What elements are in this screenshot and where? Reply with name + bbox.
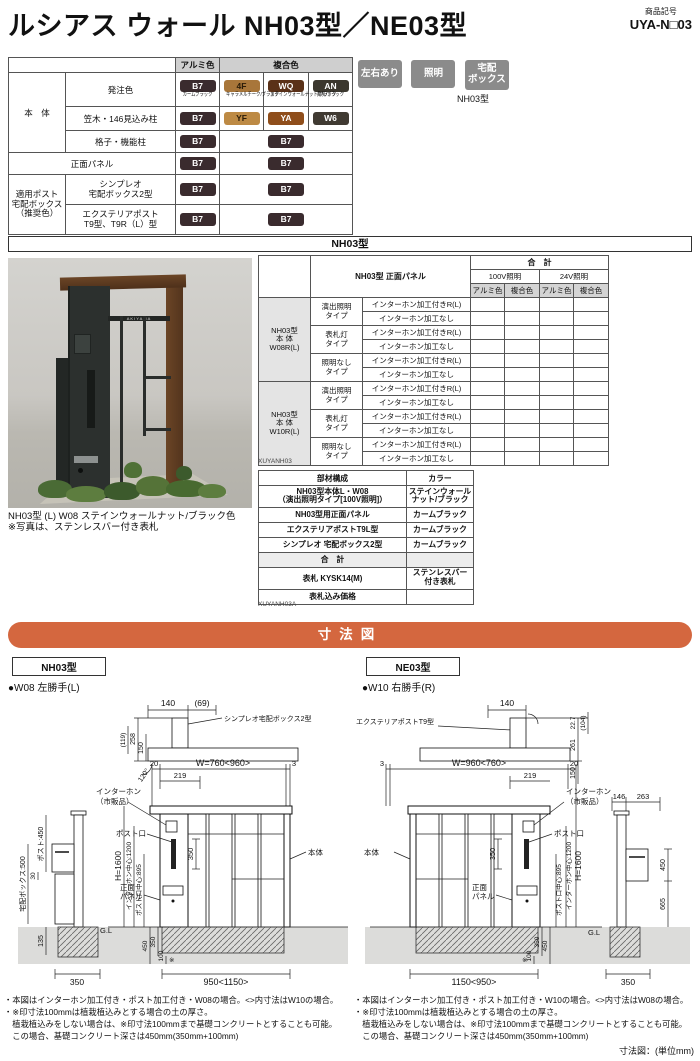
table-row: 照明なしタイプ インターホン加工付きR(L) xyxy=(259,354,609,368)
spec-group-w10: NH03型本 体W10R(L) xyxy=(259,382,311,466)
dim-side-350: 350 xyxy=(70,977,84,987)
label-exterior-post: エクステリアポスト T9型、T9R（L）型 xyxy=(66,205,176,235)
label-front-panel-1: 正面 xyxy=(472,883,487,892)
row-front-panel: 正面パネル B7 B7 xyxy=(9,153,353,175)
color-table-blank-cell xyxy=(9,58,176,73)
photo-cross-rail-1 xyxy=(143,376,171,379)
nh03-plan-view: 140 (69) シンプレオ宅配ボックス2型 258 150 (119) 120… xyxy=(120,698,311,784)
spec-type-hyosatsu: 表札灯タイプ xyxy=(311,326,363,354)
badge-lighting: 照明 xyxy=(411,60,455,88)
elev-left-post xyxy=(410,814,416,927)
product-code: 商品記号 UYA-N□03 xyxy=(630,6,692,32)
side-footing xyxy=(610,927,640,957)
dim-width: W=960<760> xyxy=(452,758,506,768)
color-chip-yf: YF xyxy=(224,112,260,125)
badge-model-note: NH03型 xyxy=(457,92,528,105)
dim-140: 140 xyxy=(500,698,514,708)
color-table-header: アルミ色 複合色 xyxy=(9,58,353,73)
chip-name-4f: キャラメルチーク/ブラック xyxy=(226,93,257,99)
color-chip-4f: 4F xyxy=(224,80,260,93)
dimension-section-title: 寸法図 xyxy=(8,622,692,648)
elev-nameplate xyxy=(517,886,537,895)
table-row: エクステリアポストT9L型カームブラック xyxy=(259,522,474,537)
ne03-variant-label: ●W10 右勝手(R) xyxy=(362,679,435,694)
elev-nameplate xyxy=(163,886,183,895)
photo-doorbell-button xyxy=(78,468,83,473)
color-table: アルミ色 複合色 本 体 発注色 B7カームブラック 4Fキャラメルチーク/ブラ… xyxy=(8,57,353,235)
dim-450: 450 xyxy=(542,940,549,951)
unit-note: 寸法図：(単位mm) xyxy=(619,1044,694,1057)
color-chip-b7: B7 xyxy=(268,183,304,196)
elev-top-beam xyxy=(150,806,292,814)
color-chip-b7: B7 xyxy=(180,112,216,125)
color-chip-an: AN xyxy=(313,80,349,93)
dim-h1600: H=1600 xyxy=(573,851,583,881)
dim-146: 146 xyxy=(613,792,626,801)
dim-119: (119) xyxy=(120,733,127,748)
parts-color-header: カラー xyxy=(407,471,474,486)
label-gl: G.L xyxy=(100,926,112,935)
label-front-panel-2: パネル xyxy=(472,892,495,901)
side-footing xyxy=(58,927,98,957)
label-front-panel: 正面パネル xyxy=(9,153,176,175)
color-chip-b7: B7 xyxy=(180,80,216,93)
table-row: 表札灯タイプ インターホン加工付きR(L) xyxy=(259,326,609,340)
product-code-label: 商品記号 xyxy=(630,6,692,17)
elev-footing xyxy=(162,927,284,953)
chip-name-an: 桑炭/ブラック xyxy=(315,93,346,99)
elev-post-slot xyxy=(171,839,176,869)
label-intercom: インターホン xyxy=(96,787,141,796)
nh03-variant-label: ●W08 左勝手(L) xyxy=(8,679,80,694)
ne03-model-label: NE03型 xyxy=(366,657,460,676)
product-photo: AKIYAMA xyxy=(8,258,252,508)
dim-69: (69) xyxy=(194,698,209,708)
chip-cell-4f: 4Fキャラメルチーク/ブラック xyxy=(220,73,264,107)
dim-width: W=760<960> xyxy=(196,758,250,768)
spec-24v-header: 24V照明 xyxy=(540,270,609,284)
dim-665: 665 xyxy=(660,898,667,910)
dim-slot-center: ポスト口中心:895 xyxy=(554,864,563,916)
table-row: NH03型本 体W10R(L) 演出照明タイプ インターホン加工付きR(L) xyxy=(259,382,609,396)
plan-box-label: シンプレオ宅配ボックス2型 xyxy=(224,714,311,723)
nh03-model-label: NH03型 xyxy=(12,657,106,676)
nh03-notes: ・本図はインターホン加工付き・ポスト加工付き・W08の場合。<>内寸法はW10の… xyxy=(4,994,350,1042)
parts-header: 部材構成 xyxy=(259,471,407,486)
spec-type-nolight: 照明なしタイプ xyxy=(311,354,363,382)
dim-takuhai-500: 宅配ボックス:500 xyxy=(18,856,27,912)
table-row: NH03型用正面パネルカームブラック xyxy=(259,507,474,522)
spec-100v-header: 100V照明 xyxy=(471,270,540,284)
product-code-value: UYA-N□03 xyxy=(630,17,692,32)
dim-258: 258 xyxy=(130,733,137,745)
dim-bottom-width: 1150<950> xyxy=(452,977,497,987)
label-order-color: 発注色 xyxy=(66,73,176,107)
spec-panel-header: NH03型 正面パネル xyxy=(311,256,471,298)
label-hontai: 本体 xyxy=(308,847,323,857)
chip-name-wq: ステインウォールナット/ブラック xyxy=(270,93,302,99)
dim-h1600: H=1600 xyxy=(113,851,123,881)
nh03-dimension-drawing: 140 (69) シンプレオ宅配ボックス2型 258 150 (119) 120… xyxy=(0,694,350,994)
photo-caption: NH03型 (L) W08 ステインウォールナット/ブラック色 ※写真は、ステン… xyxy=(8,512,236,534)
table-row: 表札 KYSK14(M) ステンレスバー付き表札 xyxy=(259,567,474,589)
dim-slot-350: 350 xyxy=(186,848,195,861)
dim-450: 450 xyxy=(142,940,149,951)
dim-350b: 350 xyxy=(534,936,541,947)
color-chip-b7: B7 xyxy=(268,157,304,170)
dim-261: 261 xyxy=(570,739,577,751)
table-row: 照明なしタイプ インターホン加工付きR(L) xyxy=(259,438,609,452)
color-chip-b7: B7 xyxy=(268,135,304,148)
dim-angle-120: 120° xyxy=(136,767,151,784)
label-kasagi: 笠木・146見込み柱 xyxy=(66,107,176,131)
dim-219: 219 xyxy=(524,771,537,780)
dim-intercom-center: インターホン中心:1200 xyxy=(564,841,573,910)
color-chip-w6: W6 xyxy=(313,112,349,125)
dim-140: 140 xyxy=(161,698,175,708)
parts-table: 部材構成 カラー NH03型本体L・W08（演出照明タイプ[100V照明]） ス… xyxy=(258,470,474,605)
color-chip-wq: WQ xyxy=(268,80,304,93)
spec-table-code: XUYANH03 xyxy=(258,458,292,465)
ne03-plan-view: エクステリアポストT9型 140 22.7 (104) 261 150 xyxy=(356,698,588,784)
label-body: 本 体 xyxy=(9,73,66,153)
chip-cell-b7: B7カームブラック xyxy=(176,73,220,107)
spec-total-header: 合 計 xyxy=(471,256,609,270)
col-aluminum: アルミ色 xyxy=(176,58,220,73)
side-cap xyxy=(71,811,86,815)
photo-post-slot xyxy=(87,370,95,428)
table-row: NH03型本 体W08R(L) 演出照明タイプ インターホン加工付きR(L) xyxy=(259,298,609,312)
photo-cross-rail-2 xyxy=(143,428,171,431)
color-chip-b7: B7 xyxy=(180,183,216,196)
photo-nameplate xyxy=(74,456,98,463)
spec-type-enshutsu: 演出照明タイプ xyxy=(311,298,363,326)
color-chip-b7: B7 xyxy=(268,213,304,226)
elev-post-slot xyxy=(524,839,529,869)
spec-blank-cell xyxy=(259,256,311,298)
dim-intercom-center: インターホン中心:1200 xyxy=(124,841,133,910)
model-band: NH03型 xyxy=(8,236,692,252)
spec-table: NH03型 正面パネル 合 計 100V照明 24V照明 アルミ色 複合色 アル… xyxy=(258,255,609,466)
col-composite: 複合色 xyxy=(220,58,353,73)
row-simpleo: 適用ポスト 宅配ボックス （推奨色） シンプレオ 宅配ボックス2型 B7 B7 xyxy=(9,175,353,205)
spec-group-w08: NH03型本 体W08R(L) xyxy=(259,298,311,382)
elev-intercom xyxy=(523,821,534,832)
label-post-slot: ポスト口 xyxy=(116,829,146,838)
dim-135: 135 xyxy=(38,935,45,947)
table-row: NH03型本体L・W08（演出照明タイプ[100V照明]） ステインウォールナッ… xyxy=(259,486,474,508)
badge-delivery-box: 宅配 ボックス xyxy=(465,60,509,90)
elev-top-beam xyxy=(408,806,550,814)
dim-150: 150 xyxy=(138,742,145,754)
dim-bottom-width: 950<1150> xyxy=(204,977,249,987)
label-intercom-2: （市販品） xyxy=(566,796,604,806)
ne03-notes: ・本図はインターホン加工付き・ポスト加工付き・W10の場合。<>内寸法はW08の… xyxy=(354,994,696,1042)
plan-post-box xyxy=(510,718,526,748)
photo-nameplate-rail: AKIYAMA xyxy=(108,316,170,321)
side-cap xyxy=(614,811,629,815)
side-delivery-box xyxy=(55,874,74,924)
photo-wood-post xyxy=(166,280,183,486)
label-koushi: 格子・機能柱 xyxy=(66,131,176,153)
row-order-color: 本 体 発注色 B7カームブラック 4Fキャラメルチーク/ブラック WQステイン… xyxy=(9,73,353,107)
dim-100: 100 xyxy=(158,950,165,961)
color-chip-ya: YA xyxy=(268,112,304,125)
page-title: ルシアス ウォール NH03型／NE03型 xyxy=(8,4,467,43)
dim-side-350: 350 xyxy=(621,977,635,987)
chip-cell-wq: WQステインウォールナット/ブラック xyxy=(264,73,309,107)
elev-intercom xyxy=(166,821,177,832)
dim-post-450: ポスト:450 xyxy=(37,827,45,862)
parts-subtotal-row: 合 計 xyxy=(259,552,474,567)
table-row: 表札灯タイプ インターホン加工付きR(L) xyxy=(259,410,609,424)
side-post xyxy=(617,815,626,927)
side-post xyxy=(74,815,83,927)
plan-delivery-box xyxy=(172,718,188,748)
label-post-slot: ポスト口 xyxy=(554,829,584,838)
catalog-page: ルシアス ウォール NH03型／NE03型 商品記号 UYA-N□03 アルミ色… xyxy=(0,0,700,1061)
side-mailbox xyxy=(52,844,74,872)
elev-footing xyxy=(416,927,538,953)
feature-badges: 左右あり 照明 宅配 ボックス NH03型 xyxy=(358,60,528,105)
table-row: シンプレオ 宅配ボックス2型カームブラック xyxy=(259,537,474,552)
side-mailbox xyxy=(626,849,648,881)
dim-100-note: ※ xyxy=(169,957,174,964)
label-gl: G.L xyxy=(588,928,600,937)
label-applicable-post: 適用ポスト 宅配ボックス （推奨色） xyxy=(9,175,66,235)
label-simpleo: シンプレオ 宅配ボックス2型 xyxy=(66,175,176,205)
badge-left-right: 左右あり xyxy=(358,60,402,88)
dim-20: 20 xyxy=(150,759,158,768)
label-intercom-2: （市販品） xyxy=(96,796,134,806)
chip-name-b7: カームブラック xyxy=(182,93,213,99)
photo-intercom xyxy=(74,334,91,354)
dim-263: 263 xyxy=(637,792,650,801)
dim-219: 219 xyxy=(174,771,187,780)
color-chip-b7: B7 xyxy=(180,157,216,170)
ne03-dimension-drawing: エクステリアポストT9型 140 22.7 (104) 261 150 3 W=… xyxy=(350,694,700,994)
color-chip-b7: B7 xyxy=(180,213,216,226)
dim-350b: 350 xyxy=(150,936,157,947)
dim-3: 3 xyxy=(380,759,384,768)
dim-450: 450 xyxy=(660,859,667,871)
chip-cell-an: AN桑炭/ブラック xyxy=(309,73,353,107)
dim-100-note: ※ xyxy=(522,957,527,964)
dim-slot-center: ポスト口中心:895 xyxy=(134,864,143,916)
label-intercom: インターホン xyxy=(566,787,611,796)
elev-right-post xyxy=(284,814,290,927)
dim-20: 20 xyxy=(570,759,578,768)
photo-thin-post-1 xyxy=(120,316,123,488)
color-chip-b7: B7 xyxy=(180,135,216,148)
parts-table-code: XUYANH03A xyxy=(258,601,296,608)
dim-3: 3 xyxy=(292,759,296,768)
label-hontai: 本体 xyxy=(364,847,379,857)
dim-slot-350: 350 xyxy=(488,848,497,861)
plan-post-label: エクステリアポストT9型 xyxy=(356,717,434,726)
dim-30: 30 xyxy=(30,872,37,880)
